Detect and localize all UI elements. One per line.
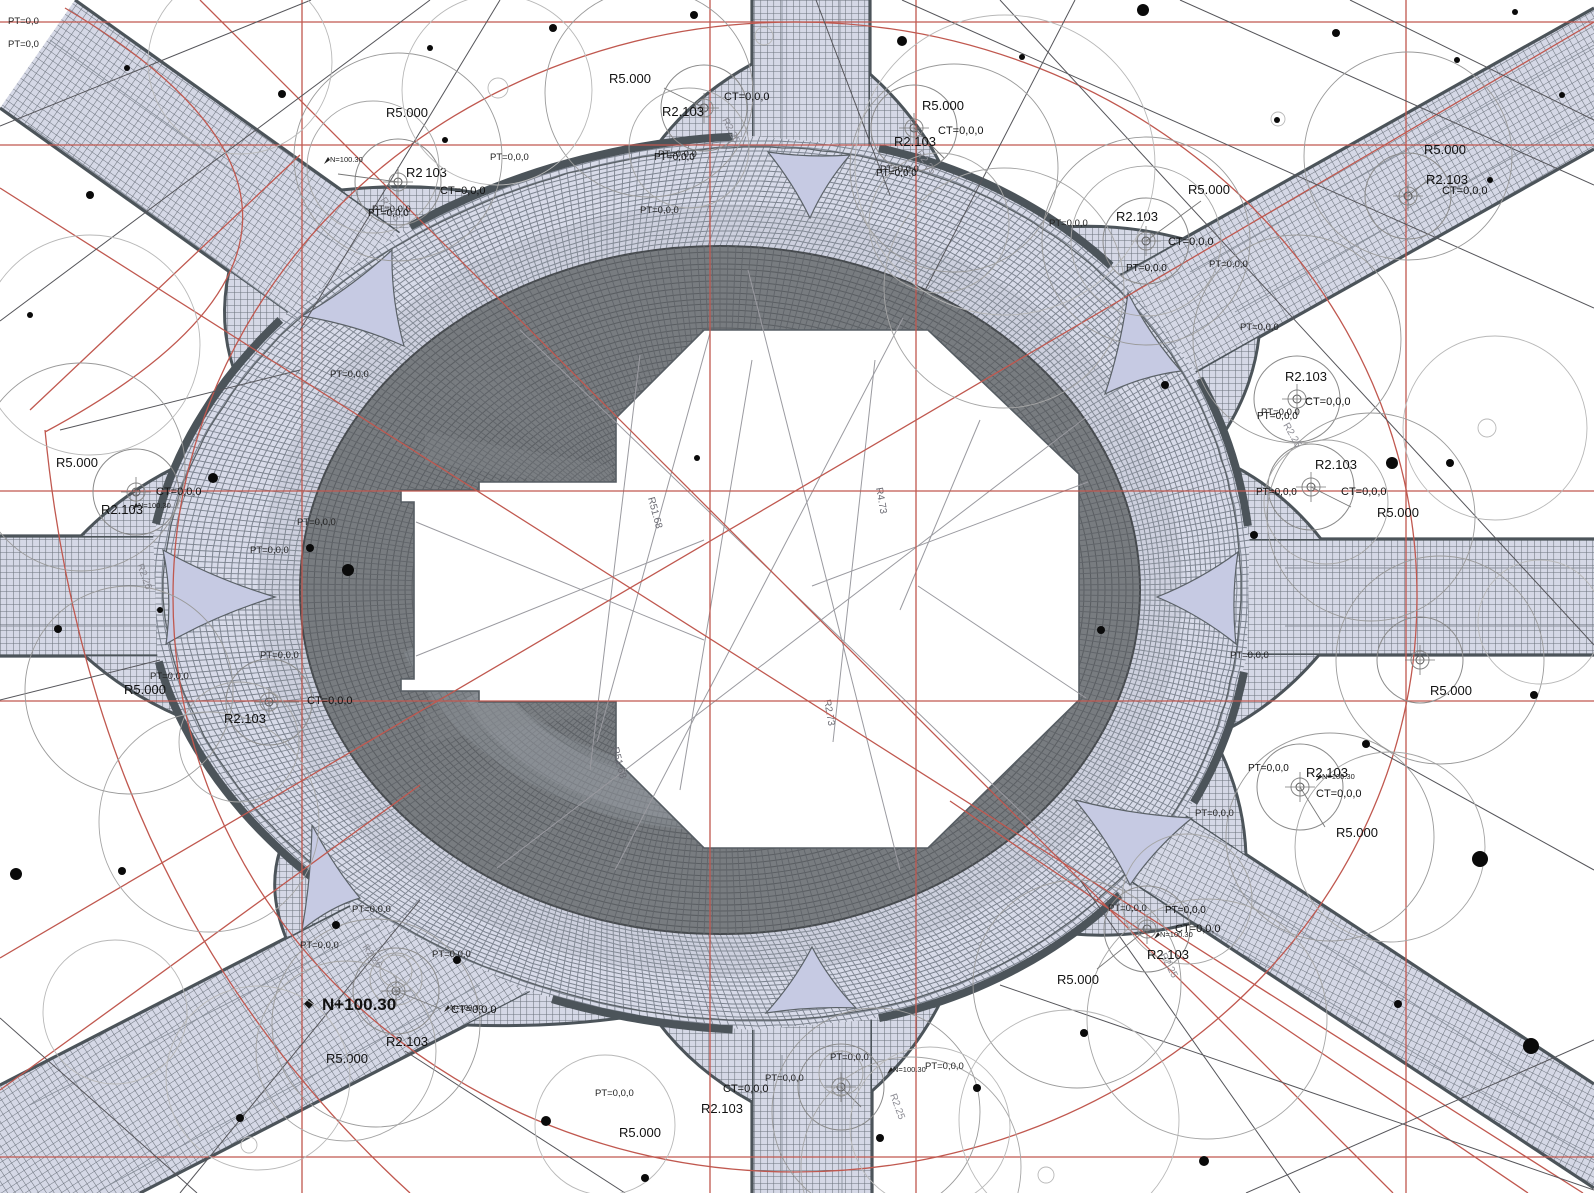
svg-text:R5.000: R5.000 [124, 682, 166, 697]
svg-text:R5.000: R5.000 [386, 105, 428, 120]
svg-text:N=100.30: N=100.30 [450, 1003, 483, 1012]
svg-text:R5.000: R5.000 [619, 1125, 661, 1140]
svg-text:PT=0,0,0: PT=0,0,0 [297, 517, 336, 528]
svg-text:PT=0,0,0: PT=0,0,0 [1230, 650, 1269, 661]
svg-text:CT=0,0,0: CT=0,0,0 [1442, 185, 1488, 197]
svg-text:PT=0,0,0: PT=0,0,0 [330, 369, 369, 380]
svg-text:R2.103: R2.103 [1285, 369, 1327, 384]
svg-text:PT=0,0,0: PT=0,0,0 [1256, 487, 1297, 498]
svg-text:PT=0,0,0: PT=0,0,0 [1261, 407, 1300, 418]
svg-text:R5.000: R5.000 [1336, 825, 1378, 840]
svg-text:CT=0,0,0: CT=0,0,0 [723, 1083, 769, 1095]
svg-text:R2.103: R2.103 [662, 104, 704, 119]
svg-text:R5.000: R5.000 [922, 98, 964, 113]
svg-text:PT=0,0,0: PT=0,0,0 [490, 152, 529, 163]
svg-text:N=100.30: N=100.30 [330, 155, 363, 164]
svg-text:PT=0,0,0: PT=0,0,0 [880, 164, 919, 175]
svg-text:PT=0,0,0: PT=0,0,0 [1126, 263, 1167, 274]
svg-text:R5.000: R5.000 [1057, 972, 1099, 987]
svg-text:CT=0,0,0: CT=0,0,0 [1168, 236, 1214, 248]
svg-text:R2.103: R2.103 [1116, 209, 1158, 224]
svg-text:PT=0,0,0: PT=0,0,0 [150, 671, 189, 682]
svg-text:PT=0,0,0: PT=0,0,0 [250, 545, 289, 556]
svg-text:CT=0,0,0: CT=0,0,0 [938, 125, 984, 137]
svg-text:PT=0,0,0: PT=0,0,0 [1108, 903, 1147, 914]
svg-text:PT=0,0,0: PT=0,0,0 [830, 1052, 869, 1063]
svg-text:R5.000: R5.000 [1430, 683, 1472, 698]
svg-text:PT=0,0,0: PT=0,0,0 [595, 1088, 634, 1099]
svg-text:R2 103: R2 103 [406, 165, 447, 180]
svg-text:CT=0,0,0: CT=0,0,0 [724, 91, 770, 103]
svg-text:PT=0,0,0: PT=0,0,0 [1248, 763, 1289, 774]
svg-text:CT=0,0,0: CT=0,0,0 [1305, 396, 1351, 408]
svg-text:PT=0,0: PT=0,0 [8, 16, 39, 27]
svg-text:PT=0,0: PT=0,0 [8, 39, 39, 50]
svg-text:R5.000: R5.000 [1188, 182, 1230, 197]
svg-text:PT=0,0,0: PT=0,0,0 [765, 1073, 804, 1084]
svg-text:CT=0,0,0: CT=0,0,0 [156, 486, 202, 498]
svg-text:PT=0,0,0: PT=0,0,0 [432, 949, 471, 960]
svg-text:CT=0,0,0: CT=0,0,0 [1316, 788, 1362, 800]
svg-text:R2.103: R2.103 [386, 1034, 428, 1049]
svg-text:N=100.30: N=100.30 [893, 1065, 926, 1074]
svg-text:PT=0,0,0: PT=0,0,0 [1195, 808, 1234, 819]
svg-text:N=100.30: N=100.30 [1322, 772, 1355, 781]
svg-text:PT=0,0,0: PT=0,0,0 [658, 149, 697, 160]
svg-text:N=100.30: N=100.30 [1160, 930, 1193, 939]
svg-text:PT=0,0,0: PT=0,0,0 [300, 940, 339, 951]
svg-text:PT=0,0,0: PT=0,0,0 [1049, 218, 1088, 229]
svg-text:CT=0,0,0: CT=0,0,0 [307, 695, 353, 707]
svg-text:R2.103: R2.103 [224, 711, 266, 726]
svg-text:PT=0,0,0: PT=0,0,0 [640, 205, 679, 216]
svg-text:R5.000: R5.000 [609, 71, 651, 86]
svg-text:PT=0,0,0: PT=0,0,0 [925, 1061, 964, 1072]
svg-text:PT=0,0,0: PT=0,0,0 [1165, 905, 1206, 916]
svg-text:R2.103: R2.103 [1315, 457, 1357, 472]
svg-text:CT=0,0,0: CT=0,0,0 [1341, 486, 1387, 498]
svg-text:R5.000: R5.000 [1424, 142, 1466, 157]
svg-text:R2.103: R2.103 [701, 1101, 743, 1116]
svg-text:PT=0,0,0: PT=0,0,0 [352, 904, 391, 915]
svg-text:N=100.30: N=100.30 [138, 501, 171, 510]
svg-text:R2.103: R2.103 [894, 134, 936, 149]
svg-text:N+100.30: N+100.30 [322, 995, 396, 1014]
svg-text:R5.000: R5.000 [1377, 505, 1419, 520]
svg-text:PT=0,0,0: PT=0,0,0 [1209, 259, 1248, 270]
svg-text:PT=0,0,0: PT=0,0,0 [260, 650, 299, 661]
svg-text:CT=0,0,0: CT=0,0,0 [440, 185, 486, 197]
svg-text:PT=0,0,0: PT=0,0,0 [1240, 322, 1279, 333]
svg-text:R5.000: R5.000 [56, 455, 98, 470]
